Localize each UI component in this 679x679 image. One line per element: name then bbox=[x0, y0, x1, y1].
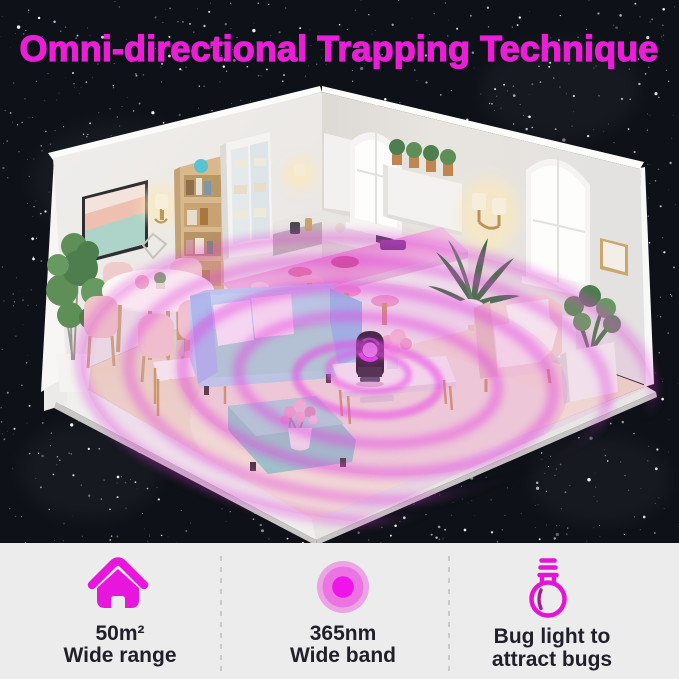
svg-text:50m²: 50m² bbox=[95, 622, 144, 645]
svg-text:Bug light to: Bug light to bbox=[494, 625, 611, 648]
svg-text:Omni-directional Trapping Tech: Omni-directional Trapping Technique bbox=[20, 28, 659, 69]
svg-text:attract bugs: attract bugs bbox=[492, 648, 612, 671]
svg-text:Wide range: Wide range bbox=[64, 644, 177, 667]
svg-text:365nm: 365nm bbox=[310, 622, 377, 645]
svg-text:Wide band: Wide band bbox=[290, 644, 396, 667]
